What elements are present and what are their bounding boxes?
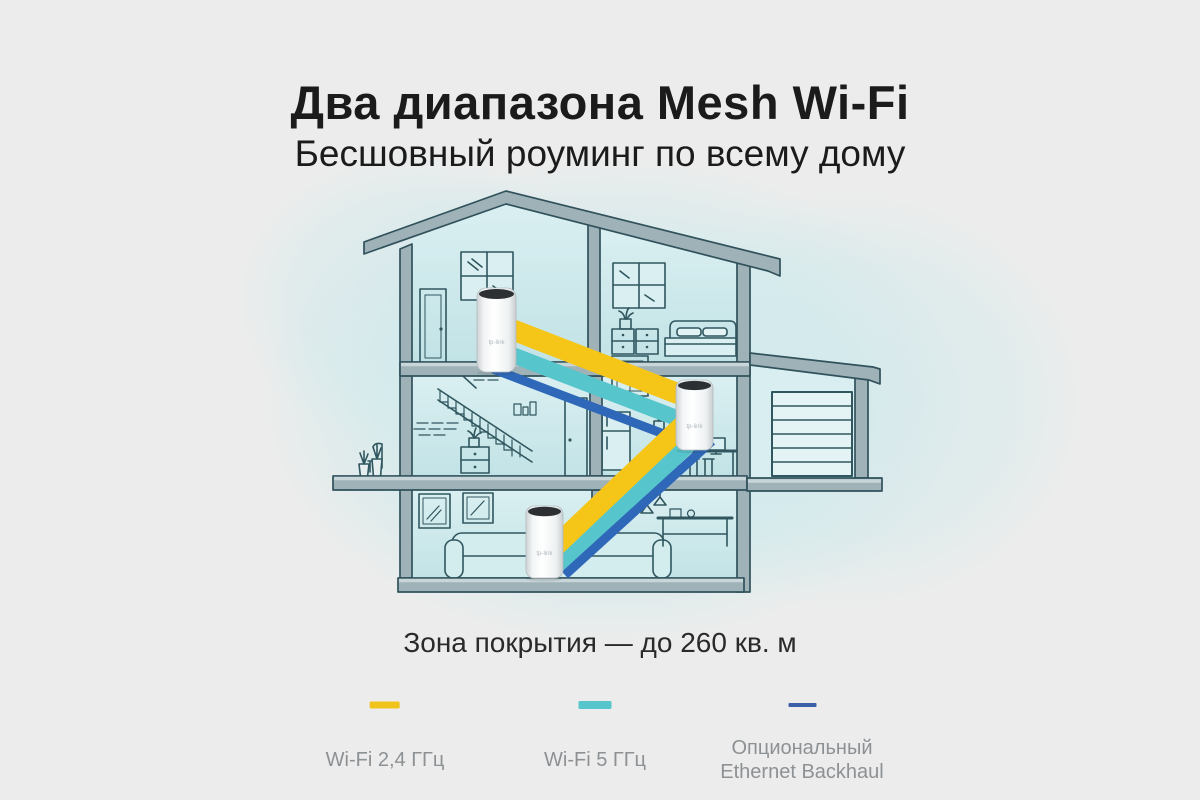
legend-label-ethernet: Опциональный Ethernet Backhaul xyxy=(710,736,895,786)
tplink-logo: tp-link xyxy=(488,340,505,346)
legend-label-wifi-24ghz: Wi-Fi 2,4 ГГц xyxy=(326,736,445,786)
promo-image: tp-link tp-link tp-link Два диапазона Me… xyxy=(0,0,1200,800)
legend-item-wifi-24ghz: Wi-Fi 2,4 ГГц xyxy=(326,700,445,786)
legend-label-wifi-5ghz: Wi-Fi 5 ГГц xyxy=(544,736,646,786)
deco-unit-ground-floor: tp-link xyxy=(526,506,563,582)
tplink-logo: tp-link xyxy=(536,551,553,557)
wifi-5ghz-dash-icon xyxy=(577,700,613,710)
deco-unit-attic: tp-link xyxy=(477,288,516,376)
tplink-logo: tp-link xyxy=(686,424,703,430)
legend-item-wifi-5ghz: Wi-Fi 5 ГГц xyxy=(544,700,646,786)
page-title: Два диапазона Mesh Wi-Fi xyxy=(0,75,1200,130)
wifi-24ghz-dash-icon xyxy=(367,700,403,710)
page-subtitle: Бесшовный роуминг по всему дому xyxy=(0,133,1200,175)
deco-unit-middle-floor: tp-link xyxy=(676,380,713,454)
ethernet-dash-icon xyxy=(784,700,820,710)
legend-item-ethernet: Опциональный Ethernet Backhaul xyxy=(710,700,895,786)
coverage-note: Зона покрытия — до 260 кв. м xyxy=(0,627,1200,659)
